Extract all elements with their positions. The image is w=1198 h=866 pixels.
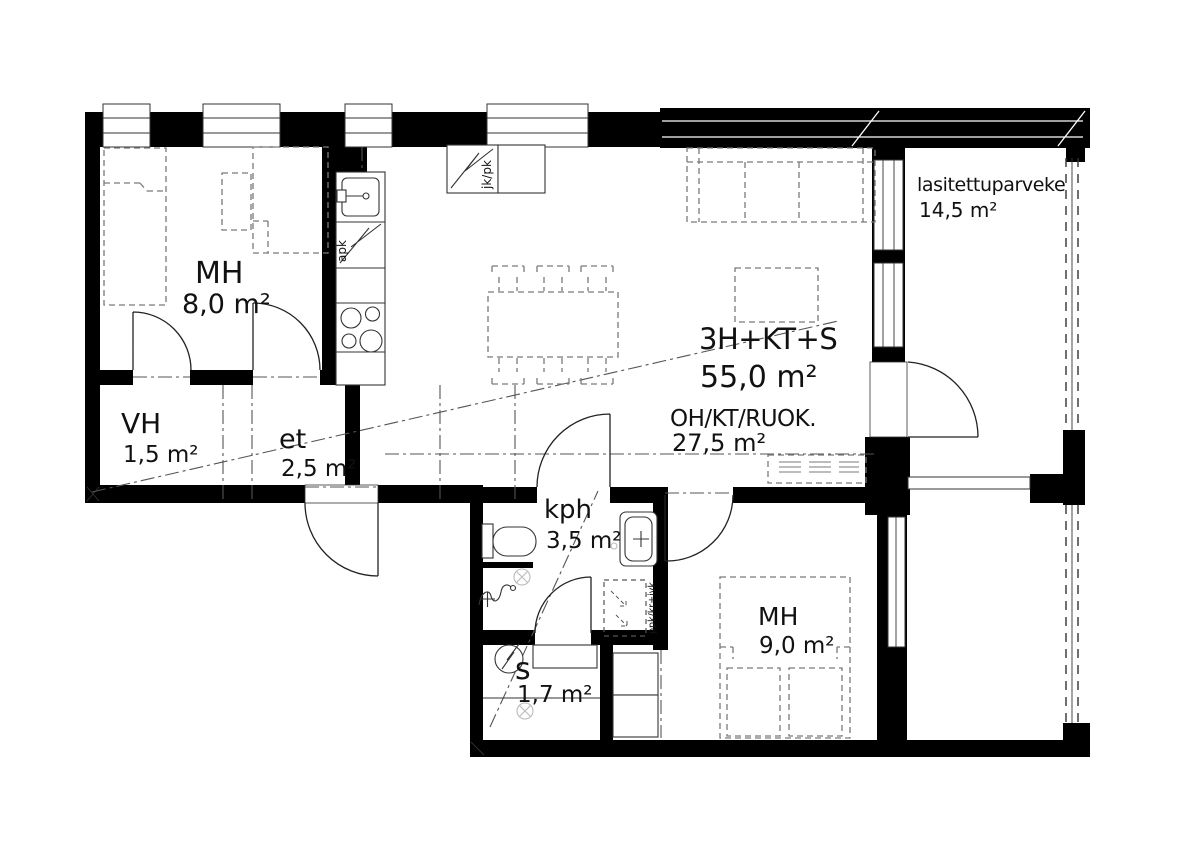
- floor-drain-icon: [514, 569, 530, 585]
- chair-icon: [537, 266, 569, 291]
- balcony-door-opening: [870, 362, 907, 437]
- room-label-balcony-name: lasitettuparveke: [917, 174, 1065, 196]
- room-label-sauna-area: 1,7 m²: [517, 682, 593, 708]
- coffee-table-icon: [735, 268, 818, 322]
- room-label-bedroom1-name: MH: [195, 256, 243, 291]
- sideboard-icon: [768, 455, 866, 483]
- window-icon: [874, 263, 903, 347]
- door-arc: [665, 495, 733, 561]
- chair-icon: [492, 358, 524, 384]
- chair-icon: [537, 358, 569, 384]
- room-label-bedroom1-area: 8,0 m²: [182, 289, 271, 320]
- floor-plan-svg: apk jk/pk: [0, 0, 1198, 866]
- door-arc: [908, 362, 978, 437]
- room-label-bedroom2-name: MH: [758, 602, 798, 631]
- window-icon: [888, 517, 905, 647]
- sauna-bench: [533, 645, 597, 668]
- kitchen-sink-icon: [337, 178, 379, 216]
- room-label-bathroom-name: kph: [544, 495, 592, 525]
- chair-icon: [492, 266, 524, 291]
- door-arc: [535, 577, 591, 633]
- window-icon: [345, 104, 392, 147]
- shower-icon: [479, 585, 516, 607]
- window-icon: [874, 160, 903, 250]
- door-arc: [537, 414, 610, 487]
- room-label-entry-name: et: [279, 424, 306, 455]
- door-arc: [133, 312, 191, 370]
- fridge-freezer-icon: jk/pk: [447, 145, 545, 193]
- window-icon: [203, 104, 280, 147]
- room-labels: MH 8,0 m² VH 1,5 m² et 2,5 m² 3H+KT+S 55…: [121, 174, 1065, 708]
- window-icon: [487, 104, 588, 147]
- chair-icon: [581, 266, 613, 291]
- room-label-bedroom2-area: 9,0 m²: [759, 633, 835, 659]
- laundry-reservation-label: ppk/kr+ivk: [647, 582, 658, 634]
- laundry-reservation-icon: ppk/kr+ivk: [604, 580, 658, 636]
- room-label-living-area: 27,5 m²: [672, 429, 766, 457]
- wardrobe-icon: [613, 653, 658, 737]
- bed-icon: [222, 147, 328, 253]
- door-arc: [305, 503, 378, 576]
- toilet-icon: [482, 524, 536, 558]
- fridge-freezer-label: jk/pk: [480, 160, 494, 190]
- room-label-balcony-area: 14,5 m²: [919, 198, 997, 222]
- floor-plan-page: apk jk/pk: [0, 0, 1198, 866]
- balcony-divider-panel: [908, 477, 1030, 489]
- bed-icon: [104, 148, 166, 305]
- apartment-area-label: 55,0 m²: [700, 360, 818, 395]
- room-label-bathroom-area: 3,5 m²: [546, 528, 622, 554]
- dishwasher-label: apk: [335, 240, 349, 262]
- chair-icon: [581, 358, 613, 384]
- room-label-closet-name: VH: [121, 407, 161, 440]
- dining-set-icon: [488, 266, 618, 384]
- window-icon: [103, 104, 150, 147]
- kitchen-fixtures: apk jk/pk: [335, 145, 545, 385]
- room-label-closet-area: 1,5 m²: [123, 442, 199, 468]
- room-label-entry-area: 2,5 m²: [281, 456, 357, 482]
- sofa-icon: [687, 148, 875, 222]
- apartment-type-label: 3H+KT+S: [699, 322, 837, 356]
- entry-door-opening: [305, 485, 378, 503]
